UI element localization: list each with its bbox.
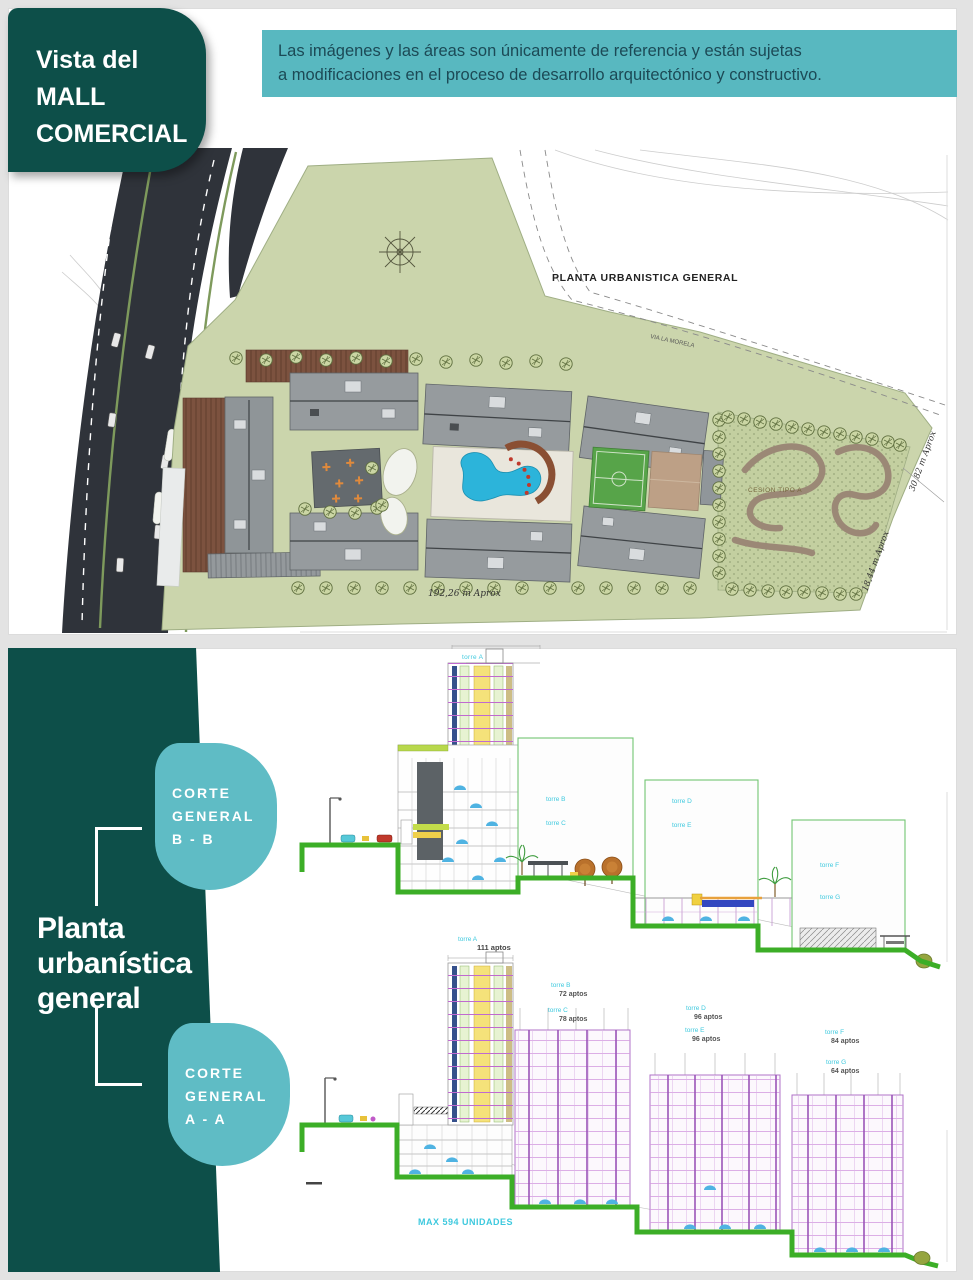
car: [339, 1115, 353, 1122]
aa-torre-b: torre B: [551, 982, 571, 989]
aa-units-d: 96 aptos: [694, 1014, 723, 1021]
bb-box1-label1: torre B: [546, 796, 566, 803]
aa-units-b: 72 aptos: [559, 991, 588, 998]
tower-a-section: [448, 952, 513, 1125]
cesion-label: CESION TIPO A: [748, 487, 802, 494]
building-block: [425, 519, 572, 582]
car: [341, 835, 355, 842]
aa-tower-units: 111 aptos: [477, 943, 511, 952]
section-title: Planta urbanística general: [37, 912, 222, 1016]
grid-building-2: [650, 1053, 780, 1232]
corte-bb-tag: CORTE GENERAL B - B: [155, 743, 277, 890]
car: [360, 1116, 367, 1121]
aa-torre-e: torre E: [685, 1027, 705, 1034]
aa-units-e: 96 aptos: [692, 1036, 721, 1043]
title-line3: COMERCIAL: [36, 116, 206, 153]
aa-torre-f: torre F: [825, 1029, 844, 1036]
slide-page: VIA LA MORELA CESION TIPO A: [0, 0, 973, 1280]
bracket-line: [95, 827, 98, 906]
aa-torre-g: torre G: [826, 1059, 846, 1066]
corte-bb-line1: CORTE: [172, 782, 277, 805]
bb-tower-label: torre A: [462, 654, 484, 661]
corte-aa-line3: A - A: [185, 1108, 290, 1131]
title-box: Vista del MALL COMERCIAL: [8, 8, 206, 172]
bracket-line: [95, 827, 142, 830]
aa-units-f: 84 aptos: [831, 1038, 860, 1045]
grid-building-3: [792, 1073, 903, 1255]
bracket-line: [95, 1006, 98, 1085]
corte-aa-line1: CORTE: [185, 1062, 290, 1085]
dim-width: 192,26 m Aprox: [428, 589, 501, 599]
pool-deck: [431, 441, 574, 521]
shrub: [914, 1252, 930, 1265]
car: [377, 835, 392, 842]
bb-box3-label2: torre G: [820, 894, 840, 901]
section-aa: torre A 111 aptos: [302, 936, 947, 1266]
aa-units-c: 78 aptos: [559, 1016, 588, 1023]
grid-building-1: [515, 1008, 630, 1207]
corte-aa-line2: GENERAL: [185, 1085, 290, 1108]
building-block: [578, 506, 706, 578]
total-units-label: MAX 594 UNIDADES: [418, 1217, 513, 1227]
building-block: [290, 373, 418, 430]
section-title-line3: general: [37, 982, 222, 1017]
bb-box1-label2: torre C: [546, 820, 566, 827]
bb-box2-label2: torre E: [672, 822, 692, 829]
car: [362, 836, 369, 841]
compass-icon: [379, 231, 421, 273]
title-line1: Vista del: [36, 42, 206, 79]
street-lamp: [330, 797, 342, 843]
soccer-field: [589, 447, 649, 511]
bb-box2-label1: torre D: [672, 798, 692, 805]
future-tower-boxes: [518, 738, 905, 950]
bb-box3-label1: torre F: [820, 862, 839, 869]
aa-tower-label: torre A: [458, 936, 478, 943]
scale-dash: [306, 1182, 322, 1185]
podium-section: [398, 745, 518, 892]
hatched-slab: [800, 928, 876, 949]
bracket-line: [95, 1083, 142, 1086]
title-line2: MALL: [36, 79, 206, 116]
disclaimer-line1: Las imágenes y las áreas son únicamente …: [278, 40, 957, 63]
section-title-line1: Planta: [37, 912, 222, 947]
section-bb: torre A: [302, 645, 947, 968]
marker: [371, 1117, 376, 1122]
corte-bb-line2: GENERAL: [172, 805, 277, 828]
sports-court: [312, 448, 383, 507]
aa-torre-d: torre D: [686, 1005, 706, 1012]
aa-torre-c: torre C: [548, 1007, 568, 1014]
disclaimer-line2: a modificaciones en el proceso de desarr…: [278, 64, 957, 87]
building-block: [423, 384, 572, 452]
plan-title: PLANTA URBANISTICA GENERAL: [552, 272, 738, 284]
aa-units-g: 64 aptos: [831, 1068, 860, 1075]
clay-court: [648, 451, 702, 510]
corte-bb-line3: B - B: [172, 828, 277, 851]
section-title-line2: urbanística: [37, 947, 222, 982]
street-lamp: [325, 1077, 337, 1123]
disclaimer-banner: Las imágenes y las áreas son únicamente …: [262, 30, 957, 97]
